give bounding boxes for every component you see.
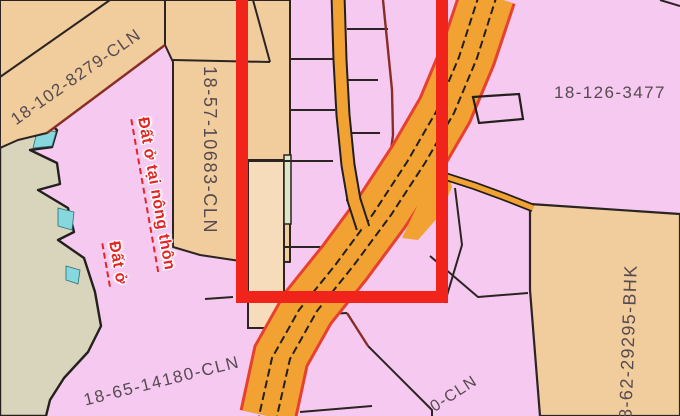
parcel-polygon-18-62 bbox=[530, 204, 680, 416]
water-patch bbox=[58, 208, 74, 230]
map-canvas[interactable]: 18-102-8279-CLN 18-57-10683-CLN 18-126-3… bbox=[0, 0, 680, 416]
parcel-label-18-57-10683-cln: 18-57-10683-CLN bbox=[201, 66, 219, 234]
parcel-polygon-green-sliver bbox=[284, 155, 291, 224]
parcel-label-18-126-3477: 18-126-3477 bbox=[554, 84, 666, 101]
parcel-label-18-62-29295-bhk: 18-62-29295-BHK bbox=[616, 264, 640, 416]
